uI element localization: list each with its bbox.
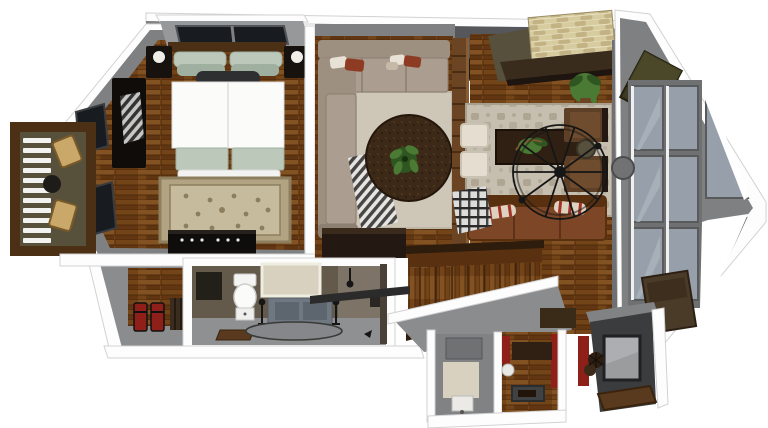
foot-bench-right [232, 148, 284, 170]
floorplan-render [0, 0, 768, 428]
sink-box [446, 338, 482, 359]
soap-unit [452, 396, 473, 411]
lower-stud-left [427, 330, 435, 422]
nightstand-left [146, 46, 172, 78]
media-credenza [322, 228, 406, 258]
sectional-back-top [318, 40, 450, 59]
wall-shelf [512, 342, 552, 360]
dark-wall-cabinet [196, 272, 222, 300]
plaid-blanket [452, 186, 492, 234]
balcony [10, 122, 96, 256]
slab-band-bathroom [104, 346, 424, 358]
utility-room [434, 334, 496, 418]
red-accent-wall [578, 336, 589, 386]
dormer-trim [156, 15, 308, 22]
wall-stud-bedroom-living [305, 26, 315, 260]
fan-hub [612, 157, 634, 179]
brown-ledge [540, 308, 576, 328]
skylight-mullion [232, 26, 234, 44]
bathroom [183, 258, 395, 352]
toilet [234, 274, 256, 320]
media-dresser [168, 230, 256, 257]
oval-rug [246, 322, 342, 340]
headboard [168, 42, 286, 52]
framed-mirror [262, 264, 320, 296]
table-lamp-right [290, 50, 304, 64]
lower-stud-mid [494, 332, 502, 418]
door-frame [380, 264, 387, 344]
foot-bench-left [176, 148, 228, 170]
white-round-fixture [502, 364, 514, 376]
table-lamp-left [152, 50, 166, 64]
round-bistro-table [43, 175, 61, 193]
beige-floor-tile [443, 362, 479, 398]
gray-blanket [120, 92, 144, 144]
red-strip-left [502, 336, 510, 364]
round-plant-rug [366, 115, 452, 201]
wardrobe-with-blanket [112, 78, 146, 168]
storage-room [502, 332, 560, 412]
lower-stud-right [558, 330, 566, 416]
